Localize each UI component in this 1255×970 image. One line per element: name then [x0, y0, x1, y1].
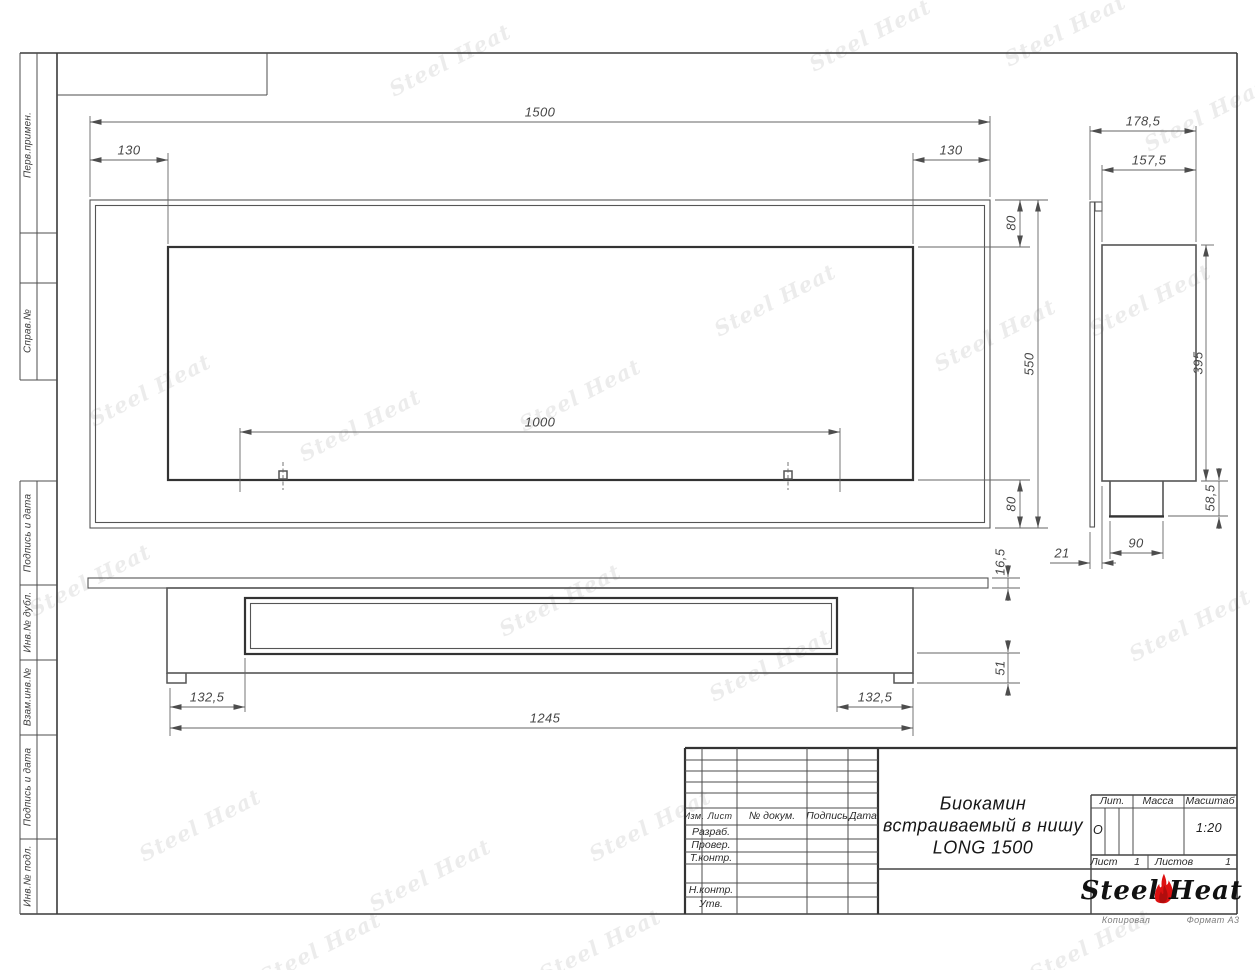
front-view: [90, 116, 1048, 528]
dim-bottom-flange-thickness: 16,5: [993, 549, 1008, 576]
tb-scale-header: Масштаб: [1185, 795, 1234, 807]
sheet-frame: [20, 53, 1237, 914]
dim-front-left-offset: 130: [118, 143, 141, 158]
logo-heat-text: Heat: [1169, 876, 1243, 906]
dim-bottom-right-offset: 132,5: [858, 690, 893, 705]
tb-role-tkontr: Т.контр.: [690, 852, 732, 864]
dim-front-top-offset: 80: [1004, 215, 1019, 230]
tb-role-razrab: Разраб.: [692, 826, 730, 838]
dim-bottom-body-width: 1245: [530, 711, 561, 726]
drawing-title-line1: Биокамин: [940, 794, 1027, 815]
tb-sheets-label: Листов: [1155, 856, 1193, 868]
margin-label-vzam-inv: Взам.инв.№: [23, 668, 34, 726]
dim-bottom-left-offset: 132,5: [190, 690, 225, 705]
tb-role-nkontr: Н.контр.: [689, 884, 733, 896]
drawing-title-line3: LONG 1500: [933, 838, 1034, 859]
tb-sheet-label: Лист: [1090, 856, 1117, 868]
dim-front-slot-width: 1000: [525, 415, 556, 430]
tb-header-doc: № докум.: [749, 810, 795, 822]
drawing-sheet: Steel Heat Steel Heat Steel Heat Steel H…: [0, 0, 1255, 970]
dim-side-flange-depth: 21: [1054, 546, 1069, 561]
margin-label-podpis-data-1: Подпись и дата: [23, 494, 34, 572]
dim-bottom-body-thickness: 51: [993, 660, 1008, 675]
logo-steel-text: Steel: [1081, 876, 1160, 906]
dim-front-total-width: 1500: [525, 105, 556, 120]
margin-label-inv-podl: Инв.№ подл.: [23, 845, 34, 906]
margin-label-perv-primen: Перв.примен.: [23, 112, 34, 178]
tb-header-list: Лист: [708, 811, 733, 821]
dim-side-tray-width: 90: [1128, 536, 1143, 551]
footer-copied-label: Копировал: [1102, 915, 1150, 925]
margin-label-inv-dubl: Инв.№ дубл.: [23, 592, 34, 653]
drawing-title-line2: встраиваемый в нишу: [883, 816, 1083, 837]
tb-sheets-value: 1: [1225, 856, 1231, 868]
side-view: [1050, 126, 1228, 569]
tb-role-utv: Утв.: [699, 898, 723, 910]
dim-front-height: 550: [1022, 353, 1037, 376]
tb-header-izm: Изм.: [684, 811, 705, 821]
tb-scale-value: 1:20: [1196, 821, 1222, 835]
tb-sheet-value: 1: [1134, 856, 1140, 868]
footer-format-label: Формат A3: [1187, 915, 1240, 925]
tb-header-sign: Подпись: [806, 810, 848, 822]
tb-role-prover: Провер.: [691, 839, 730, 851]
tb-mass-header: Масса: [1142, 795, 1173, 807]
tb-header-date: Дата: [849, 810, 877, 822]
tb-lit-value: О: [1093, 823, 1103, 837]
dim-side-body-depth: 157,5: [1132, 153, 1167, 168]
dim-front-right-offset: 130: [940, 143, 963, 158]
tb-lit-header: Лит.: [1100, 795, 1125, 807]
dim-front-bottom-offset: 80: [1004, 496, 1019, 511]
margin-label-podpis-data-2: Подпись и дата: [23, 748, 34, 826]
dim-side-total-depth: 178,5: [1126, 114, 1161, 129]
margin-label-sprav-no: Справ.№: [23, 309, 34, 353]
dim-side-tray-height: 58,5: [1203, 485, 1218, 512]
dim-side-body-height: 395: [1191, 352, 1206, 375]
